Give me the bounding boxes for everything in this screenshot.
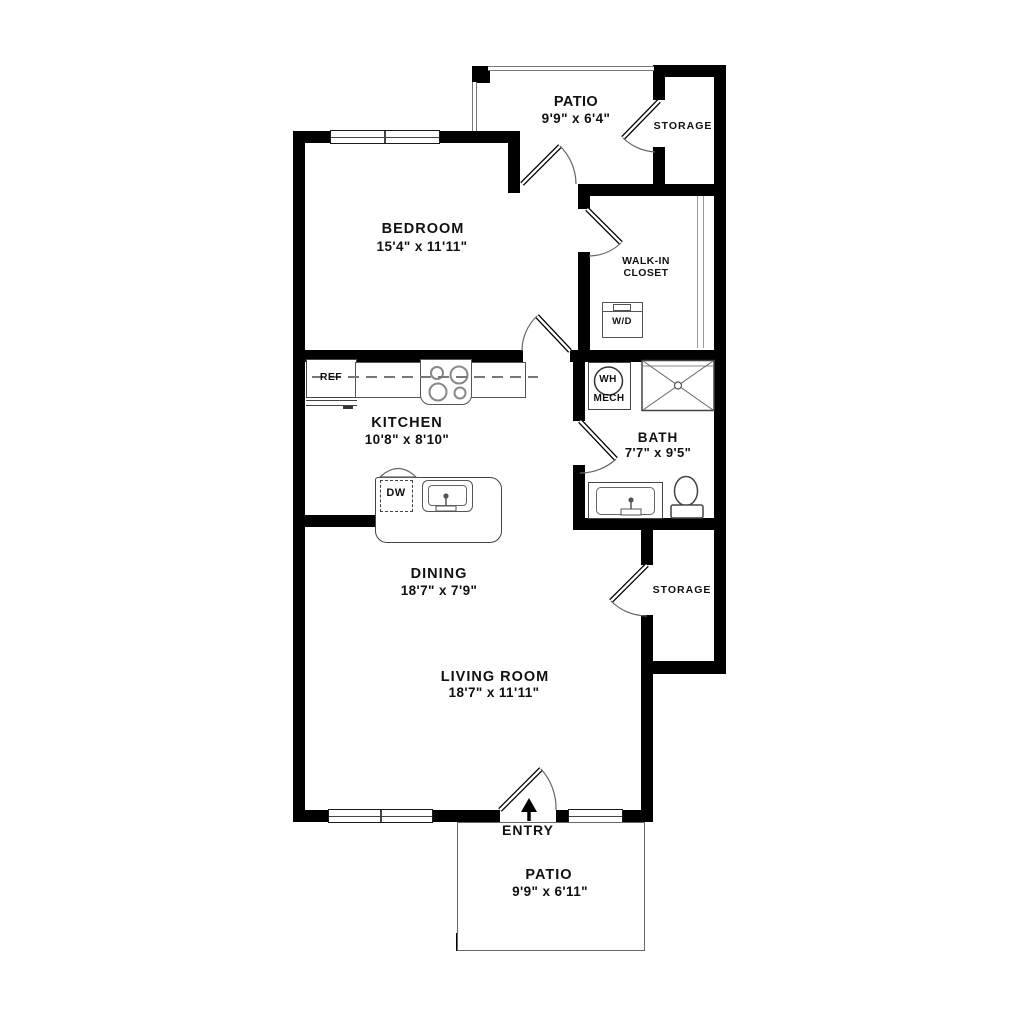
entry-arrow-icon (521, 798, 537, 821)
living-room-label: LIVING ROOM (441, 670, 549, 685)
dining-label: DINING (411, 567, 468, 582)
bath-door (580, 421, 616, 473)
bath-label: BATH (638, 431, 679, 445)
patio-bottom-dims: 9'9" x 6'11" (512, 885, 588, 899)
walk-in-closet-label-line1: WALK-IN (622, 256, 670, 267)
mechanical-label: MECH (593, 394, 624, 404)
bedroom-patio-door (522, 146, 576, 184)
patio-top-label: PATIO (554, 95, 598, 110)
living-room-dims: 18'7" x 11'11" (449, 686, 540, 700)
island-sink-faucet (436, 493, 456, 511)
patio-bottom-label: PATIO (525, 868, 572, 883)
bedroom-label: BEDROOM (382, 222, 465, 237)
bath-sink-faucet (621, 497, 641, 515)
floor-plan: PATIO 9'9" x 6'4" STORAGE BEDROOM 15'4" … (0, 0, 1024, 1024)
patio-top-dims: 9'9" x 6'4" (542, 112, 611, 126)
plan-detail-layer (0, 0, 1024, 1024)
storage-top-label: STORAGE (654, 121, 713, 132)
shower (642, 361, 714, 411)
washer-dryer-label: W/D (612, 317, 632, 327)
walk-in-closet-door (587, 209, 621, 256)
storage-bottom-label: STORAGE (653, 585, 712, 596)
bath-dims: 7'7" x 9'5" (625, 446, 691, 459)
island-faucet-arc (380, 469, 416, 478)
kitchen-label: KITCHEN (371, 416, 442, 431)
dining-dims: 18'7" x 7'9" (401, 584, 478, 598)
stove-burners (430, 367, 468, 401)
bedroom-door (522, 316, 570, 351)
kitchen-dims: 10'8" x 8'10" (365, 433, 449, 447)
walk-in-closet-label-line2: CLOSET (624, 268, 669, 279)
entry-label: ENTRY (502, 823, 554, 837)
dishwasher-label: DW (386, 488, 405, 499)
storage-bottom-door (611, 565, 647, 616)
refrigerator-label: REF (320, 372, 342, 383)
toilet (671, 477, 703, 519)
water-heater-label: WH (599, 375, 616, 385)
bedroom-dims: 15'4" x 11'11" (377, 240, 468, 254)
